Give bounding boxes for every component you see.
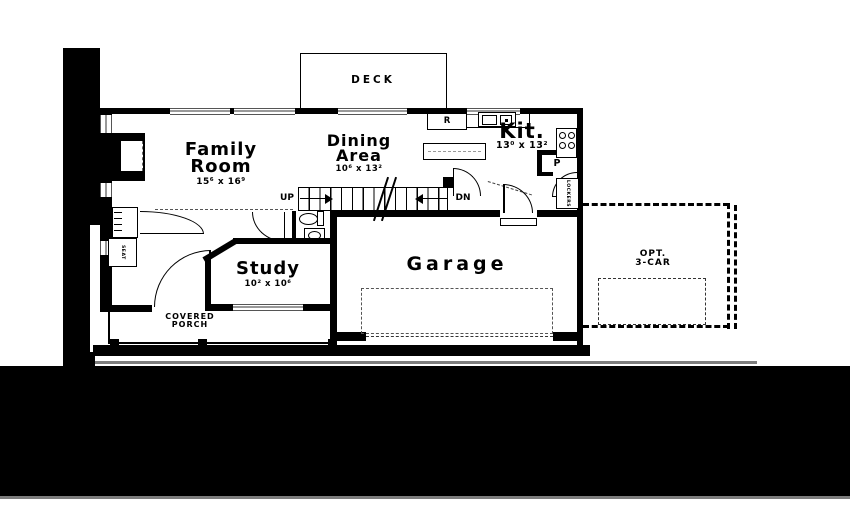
- kitchen-name: Kit.: [462, 120, 582, 142]
- west-window-1: [100, 115, 112, 133]
- garage-door-dashed: [366, 336, 553, 337]
- dining-area-name-2: Area: [300, 148, 418, 165]
- wall-garage-bottom-right: [553, 332, 583, 341]
- window-seat: SEAT: [108, 238, 137, 267]
- dn-arrow-icon: [415, 194, 423, 204]
- study-window: [233, 304, 303, 311]
- ground-line-upper: [95, 361, 757, 364]
- study-label: Study 10² x 10⁶: [208, 260, 328, 289]
- garage-entry-door-arc: [503, 184, 533, 213]
- opt-garage-right-dashed-outer: [727, 203, 730, 329]
- up-arrow-line: [300, 198, 326, 199]
- powder-sink-basin: [308, 231, 321, 240]
- bottom-black-bar: [0, 366, 850, 496]
- refrigerator-label: R: [428, 117, 466, 126]
- study-dims: 10² x 10⁶: [208, 280, 328, 289]
- closet-door-leaf: [140, 233, 204, 234]
- stairs: [298, 187, 448, 211]
- garage-entry-step: [500, 218, 537, 226]
- dining-area-dims: 10⁶ x 13²: [300, 165, 418, 174]
- closet-hanger-tick-2: [114, 218, 122, 219]
- stairs-up-label: UP: [276, 194, 298, 203]
- garage-name: Garage: [377, 255, 537, 275]
- left-black-bar-bottom: [63, 225, 90, 358]
- powder-door-leaf: [284, 212, 285, 242]
- family-room-label: Family Room 15⁶ x 16⁹: [160, 141, 282, 187]
- garage-entry-door-leaf: [503, 184, 505, 213]
- kitchen-label: Kit. 13⁰ x 13²: [462, 120, 582, 151]
- ground-base-band: [93, 345, 590, 356]
- island-dashed-line: [428, 151, 481, 152]
- closet-door-arc: [140, 211, 204, 234]
- family-window-2: [234, 108, 295, 115]
- kitchen-hall-door-arc: [453, 168, 481, 196]
- front-door-arc: [154, 250, 211, 307]
- left-black-bar-top: [63, 48, 100, 225]
- family-room-name-2: Room: [160, 158, 282, 177]
- firebox-dashed-face: [142, 141, 143, 171]
- wall-garage-west: [330, 210, 337, 348]
- opt-garage-right-dashed-inner: [734, 205, 737, 329]
- firebox: [121, 141, 143, 171]
- dn-arrow-line: [422, 198, 448, 199]
- porch-post-3: [328, 339, 337, 347]
- family-room-dims: 15⁶ x 16⁹: [160, 178, 282, 187]
- family-window-1: [170, 108, 230, 115]
- covered-porch-line2: PORCH: [140, 321, 240, 329]
- ground-line-lower: [0, 496, 850, 499]
- toilet-tank-icon: [317, 211, 324, 226]
- west-window-2: [100, 183, 112, 197]
- covered-porch-label: COVERED PORCH: [140, 313, 240, 330]
- opt-garage-bottom-dashed: [583, 325, 729, 328]
- toilet-icon: [299, 213, 318, 225]
- seat-label: SEAT: [109, 239, 136, 266]
- garage-label: Garage: [377, 255, 537, 275]
- opt-3car-line2: 3-CAR: [603, 259, 703, 268]
- porch-post-1: [110, 339, 119, 347]
- floor-plan: DECK UP DN: [0, 0, 850, 520]
- porch-edge-south: [108, 342, 337, 344]
- closet-hanger-tick-3: [114, 224, 122, 225]
- up-arrow-icon: [325, 194, 333, 204]
- pantry-label: P: [545, 159, 569, 169]
- garage-storage-dashed: [361, 288, 553, 334]
- opt-3car-label: OPT. 3-CAR: [603, 250, 703, 269]
- wall-powder-left: [292, 211, 296, 244]
- dining-area-label: Dining Area 10⁶ x 13²: [300, 133, 418, 174]
- deck-label: DECK: [303, 75, 443, 86]
- wall-garage-top-left: [330, 210, 500, 217]
- deck-slider-door: [338, 108, 407, 115]
- study-name: Study: [208, 260, 328, 279]
- lockers-label: LOCKERS: [557, 179, 578, 208]
- porch-post-2: [198, 339, 207, 347]
- left-black-bar-foot: [63, 352, 95, 366]
- foyer-ceiling-dashed-line: [155, 209, 293, 210]
- opt-garage-door-dashed: [598, 278, 706, 325]
- kitchen-hall-door-leaf: [453, 168, 454, 196]
- wall-pantry-bottom-stub: [537, 172, 553, 176]
- wall-garage-top-right: [537, 210, 583, 217]
- opt-garage-top-dashed: [583, 203, 729, 206]
- closet-hanger-tick-4: [114, 230, 122, 231]
- closet-hanger-tick-1: [114, 212, 122, 213]
- kitchen-dims: 13⁰ x 13²: [462, 141, 582, 151]
- refrigerator-box: R: [427, 113, 467, 130]
- lockers-cabinet: LOCKERS: [556, 178, 579, 209]
